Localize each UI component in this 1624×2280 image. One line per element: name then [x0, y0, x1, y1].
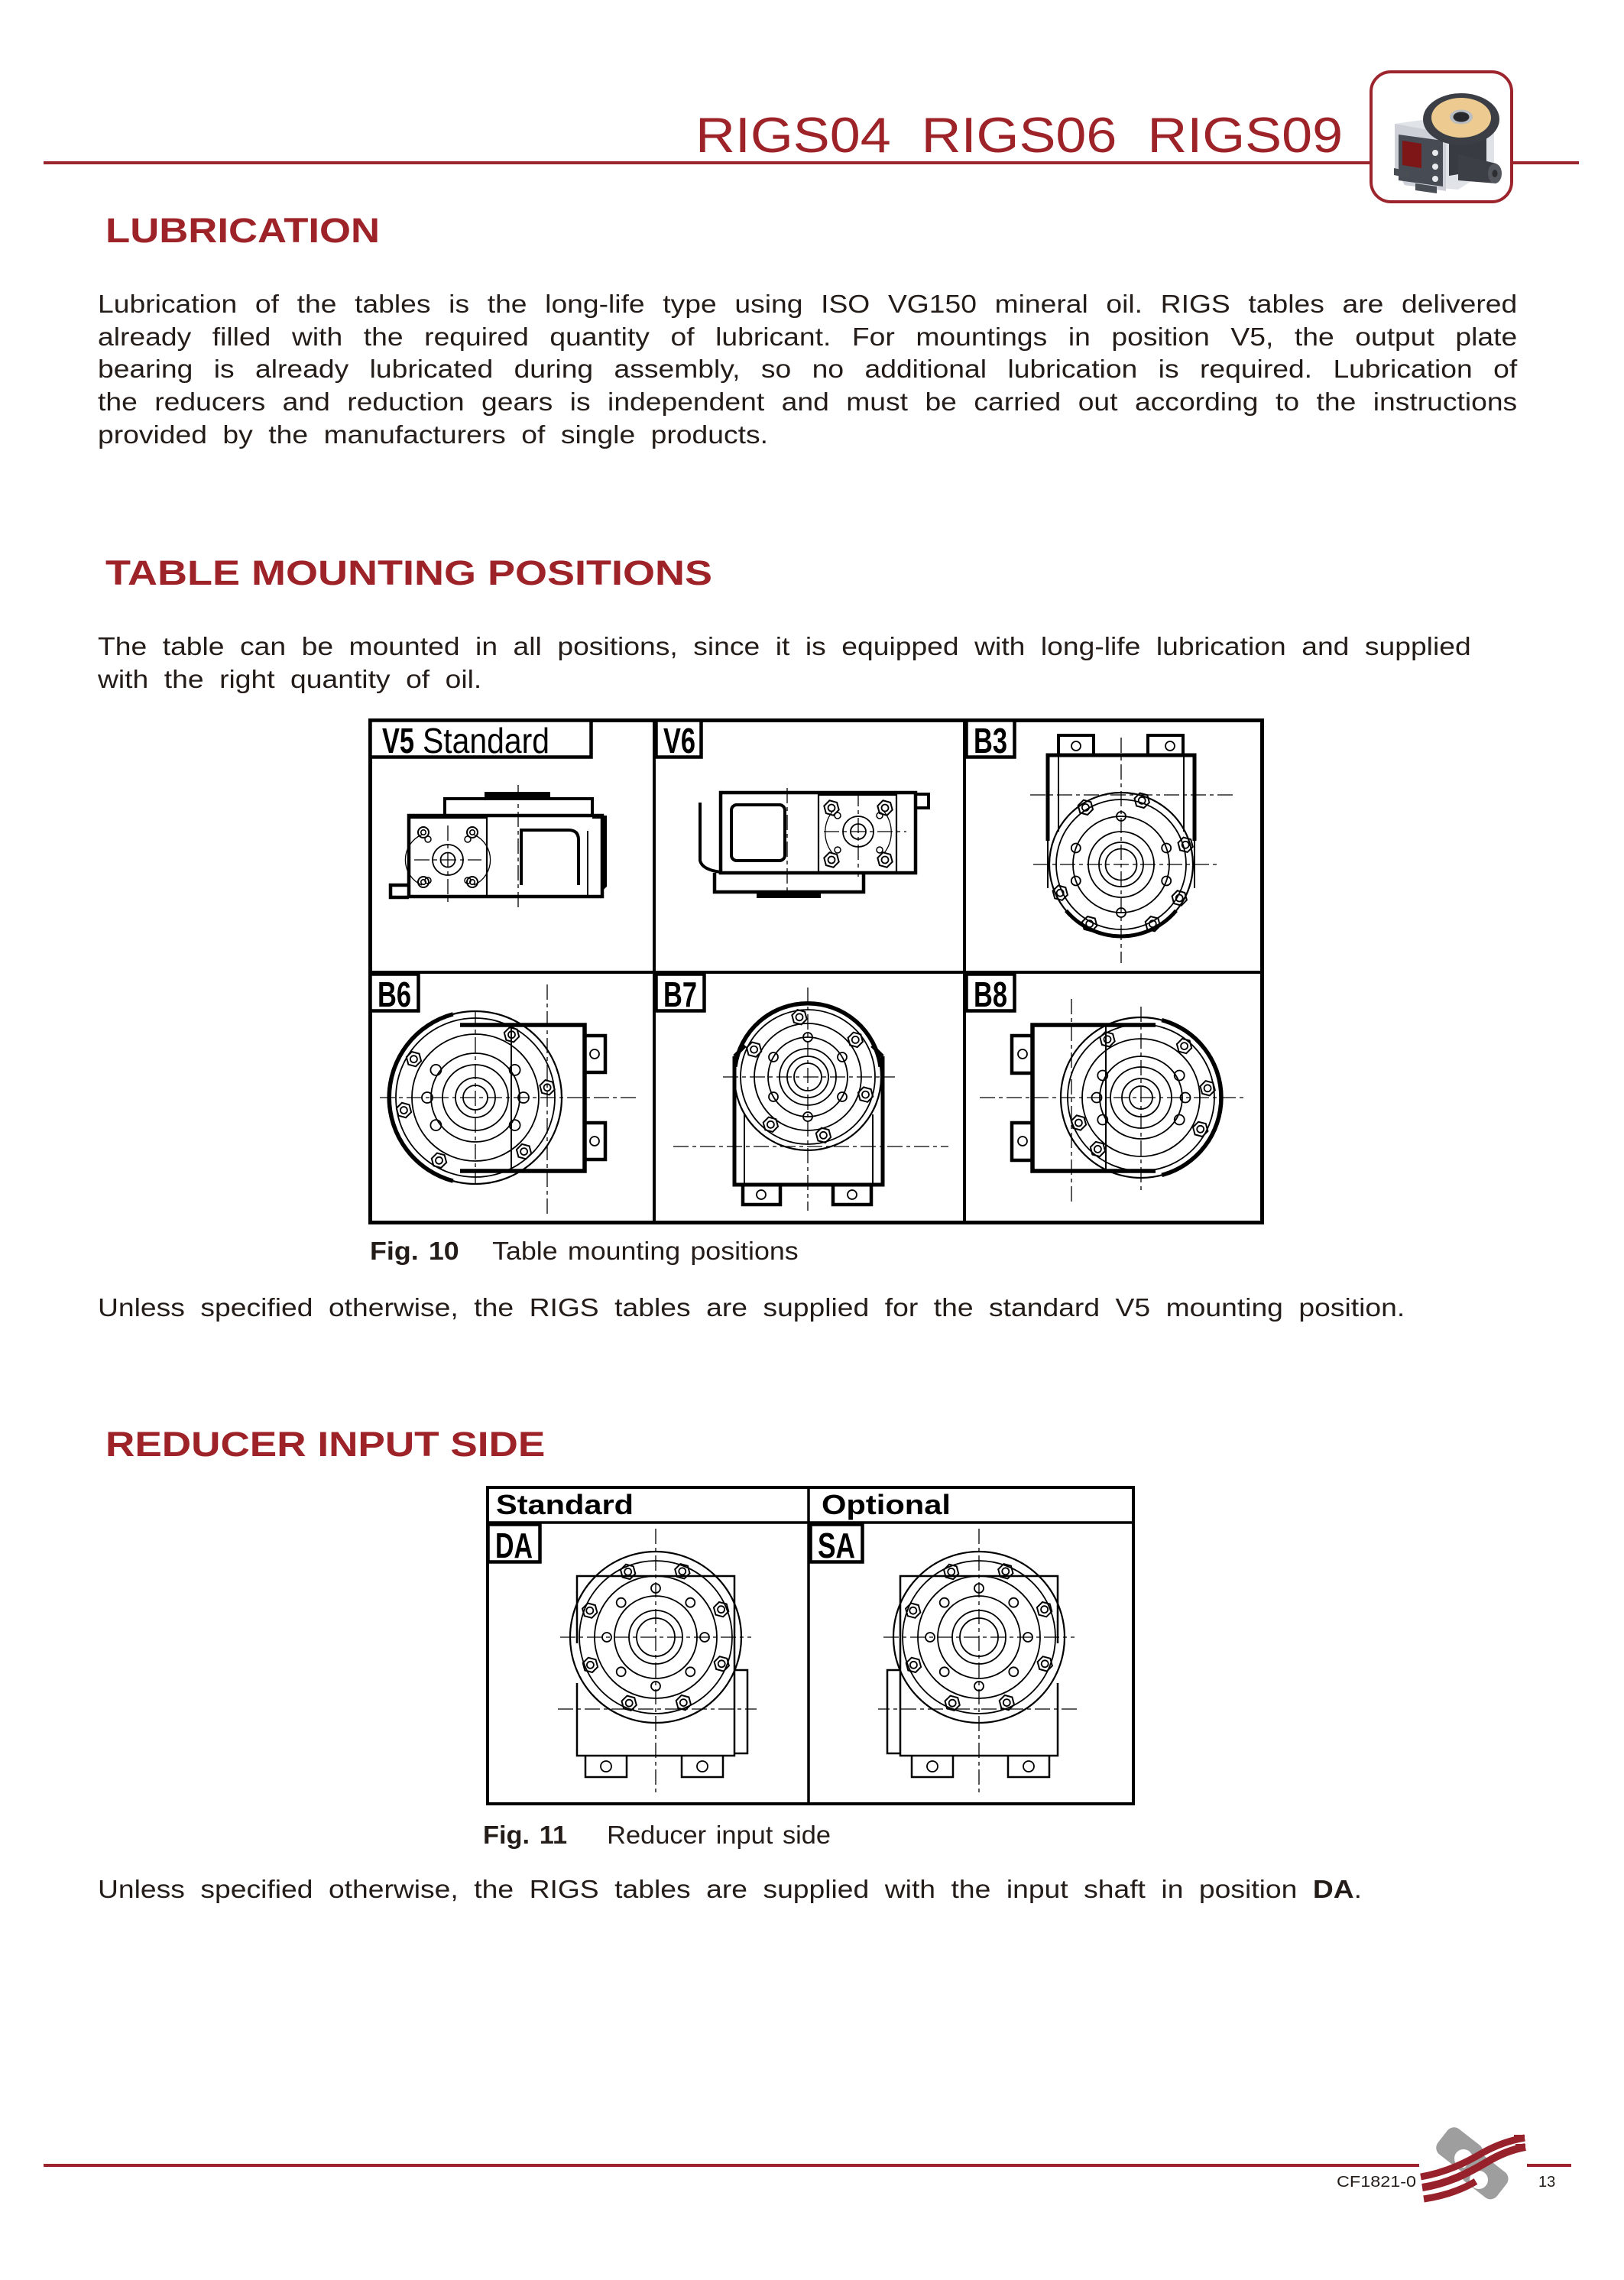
svg-text:B6: B6 [378, 975, 411, 1014]
svg-text:B8: B8 [974, 975, 1007, 1014]
svg-text:B7: B7 [663, 975, 697, 1014]
svg-text:V6: V6 [663, 721, 695, 761]
svg-text:SA: SA [818, 1526, 855, 1565]
svg-text:Optional: Optional [822, 1489, 951, 1520]
svg-text:V5: V5 [382, 721, 414, 761]
svg-text:Standard: Standard [496, 1489, 634, 1520]
svg-text:B3: B3 [974, 721, 1007, 761]
svg-text:Standard: Standard [423, 721, 549, 761]
svg-text:DA: DA [495, 1526, 533, 1565]
